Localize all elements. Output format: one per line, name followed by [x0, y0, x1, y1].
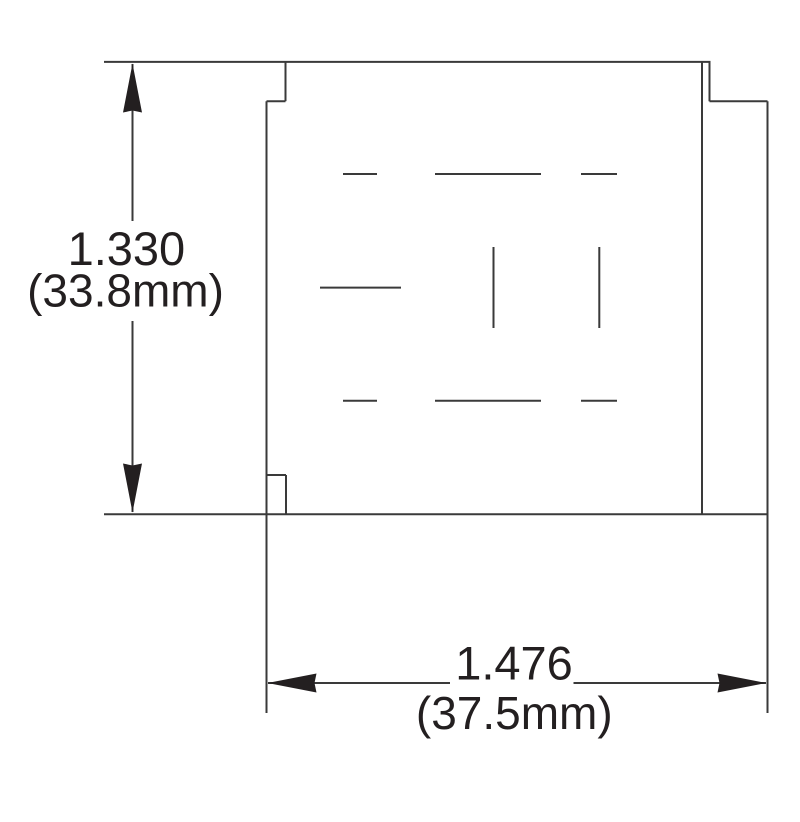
svg-text:1.476: 1.476 [455, 637, 573, 690]
svg-text:(37.5mm): (37.5mm) [416, 687, 613, 739]
svg-text:(33.8mm): (33.8mm) [27, 265, 224, 317]
